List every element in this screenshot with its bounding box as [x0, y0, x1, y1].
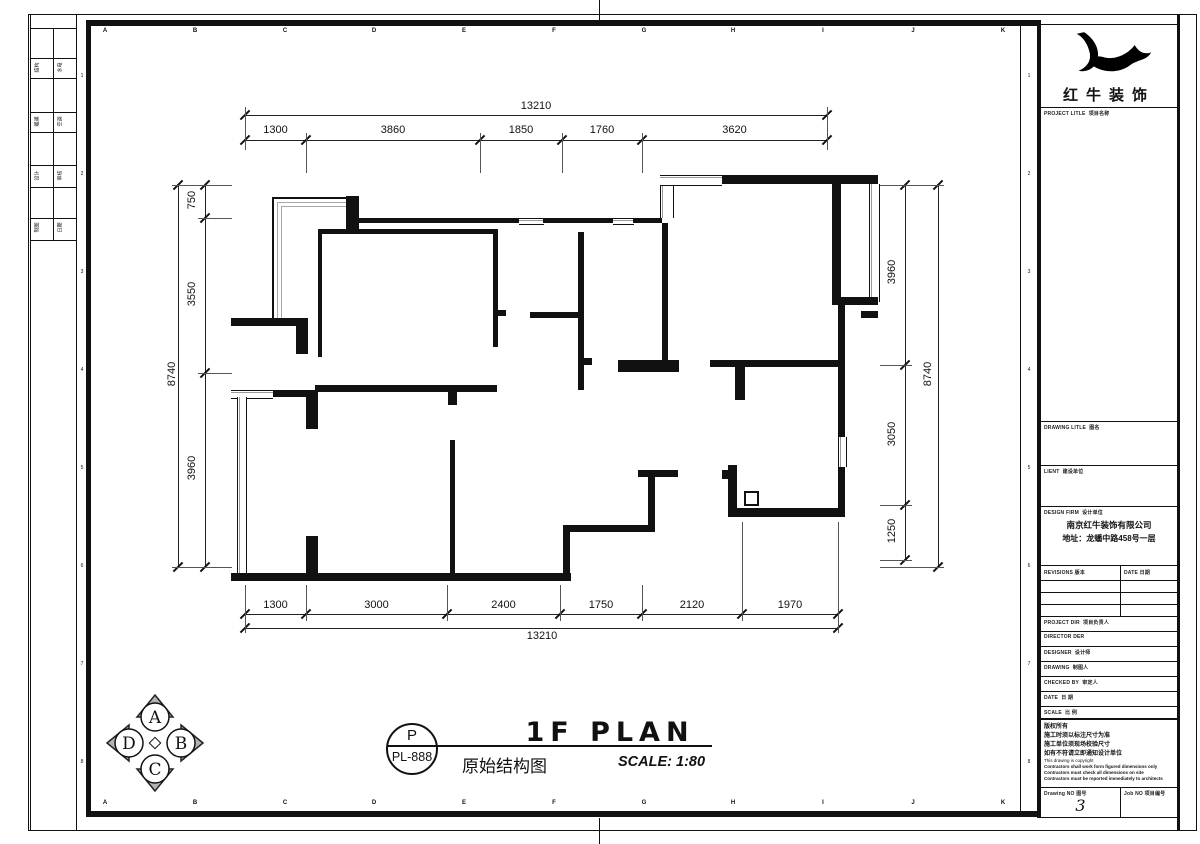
brand-name: 红牛装饰: [1041, 84, 1177, 105]
label-cn: 图名: [1089, 425, 1099, 431]
compass-s: C: [148, 760, 161, 780]
grid-number: 4: [1024, 367, 1034, 373]
grid-letter: A: [97, 800, 113, 806]
tb-line: [1120, 787, 1121, 817]
grid-letter: C: [277, 28, 293, 34]
staff-row: CHECKED BY 审定人: [1044, 679, 1098, 686]
wall: [710, 360, 845, 367]
tb-line: [1041, 787, 1177, 788]
wall: [832, 184, 841, 299]
tb-line: [1041, 565, 1177, 566]
wall: [578, 232, 584, 390]
fixture: [744, 491, 759, 506]
grid-letter: J: [905, 800, 921, 806]
wall: [315, 385, 497, 392]
window: [519, 218, 544, 225]
tb-line: [1041, 817, 1177, 818]
grid-letter: D: [366, 800, 382, 806]
label-cn: 制图人: [1073, 665, 1089, 671]
grid-number: 7: [77, 661, 87, 667]
label-en: DATE: [1044, 695, 1058, 701]
ext-line: [306, 133, 307, 173]
wall: [722, 470, 728, 479]
wall: [273, 390, 318, 397]
date-col-label: DATE 日期: [1124, 569, 1150, 576]
label-en: DESIGNER: [1044, 650, 1072, 656]
job-no-label: Job NO 项目编号: [1124, 790, 1165, 797]
grid-letter: E: [456, 28, 472, 34]
tb-line: [1041, 506, 1177, 507]
label-en: PROJECT DIR: [1044, 620, 1080, 626]
label-cn: 项目名称: [1089, 111, 1110, 117]
dim-line: [245, 614, 838, 615]
wall: [231, 318, 308, 326]
dim-line: [178, 185, 179, 567]
table-line: [53, 28, 54, 240]
label-cn: 设计单位: [1082, 510, 1103, 516]
fold-mark: [599, 818, 600, 844]
compass-w: D: [122, 734, 136, 754]
compass-n: A: [148, 708, 162, 728]
ext-line: [172, 185, 232, 186]
dim-label: 1300: [245, 599, 306, 611]
window: [869, 184, 880, 302]
firm-name: 南京红牛装饰有限公司: [1041, 519, 1177, 531]
wall: [638, 470, 678, 477]
frame-band: [86, 20, 1041, 26]
window: [237, 397, 247, 573]
signoff-cell: 设计: [34, 170, 41, 180]
signoff-cell: 暖通: [34, 116, 41, 126]
tb-line: [1041, 631, 1177, 632]
window: [613, 218, 634, 225]
firm-address: 地址：龙蟠中路458号一层: [1041, 533, 1177, 544]
tb-line: [1041, 691, 1177, 692]
label-en: PROJECT LITLE: [1044, 111, 1086, 117]
grid-letter: G: [636, 800, 652, 806]
wall: [272, 197, 274, 322]
wall: [231, 573, 571, 581]
tb-line: [1041, 107, 1177, 108]
ext-line: [880, 567, 944, 568]
dim-label: 2400: [447, 599, 560, 611]
staff-row: DESIGNER 设计师: [1044, 649, 1091, 656]
wall: [318, 229, 498, 234]
dim-label: 3620: [642, 124, 827, 136]
ext-line: [245, 585, 246, 633]
grid-letter: H: [725, 28, 741, 34]
grid-letter: G: [636, 28, 652, 34]
copyright-line: Contractors shall work form figured dime…: [1044, 764, 1157, 769]
grid-number: 4: [77, 367, 87, 373]
dim-label: 3860: [306, 124, 480, 136]
ext-line: [172, 567, 232, 568]
client-label: LIENT 建设单位: [1044, 468, 1083, 475]
ext-line: [480, 133, 481, 173]
wall: [563, 532, 570, 578]
plan-title-en: 1F PLAN: [500, 717, 720, 748]
window: [838, 437, 847, 467]
wall: [306, 536, 318, 573]
wall: [735, 367, 745, 400]
window: [660, 175, 722, 186]
grid-number: 7: [1024, 661, 1034, 667]
dim-label: 8740: [166, 344, 178, 404]
grid-letter: I: [815, 28, 831, 34]
grid-letter: B: [187, 800, 203, 806]
dim-label: 3960: [186, 438, 198, 498]
compass-icon: A B C D: [105, 693, 205, 793]
frame-line: [1020, 26, 1021, 812]
ext-line: [447, 585, 448, 621]
fold-mark: [599, 0, 600, 21]
dim-line: [938, 185, 939, 567]
grid-letter: I: [815, 800, 831, 806]
dim-label: 1300: [245, 124, 306, 136]
frame-line: [1177, 20, 1178, 818]
wall: [281, 206, 347, 207]
compass-e: B: [175, 734, 188, 754]
dim-label: 1970: [742, 599, 838, 611]
grid-number: 1: [1024, 73, 1034, 79]
copyright-line: 施工时须以标注尺寸为准: [1044, 730, 1110, 739]
signoff-cell: 审核: [57, 170, 64, 180]
label-cn: 建设单位: [1063, 469, 1084, 475]
ext-line: [880, 505, 912, 506]
label-en: DRAWING LITLE: [1044, 425, 1086, 431]
tb-line: [1041, 718, 1177, 720]
dim-label: 3050: [886, 404, 898, 464]
wall: [346, 196, 359, 232]
wall: [448, 392, 457, 405]
staff-row: DIRECTOR DER: [1044, 634, 1088, 640]
wall: [450, 440, 455, 573]
ext-line: [642, 133, 643, 173]
grid-number: 3: [1024, 269, 1034, 275]
label-en: DATE: [1124, 570, 1138, 576]
dim-label: 1850: [480, 124, 562, 136]
frame-line: [76, 14, 77, 830]
label-en: LIENT: [1044, 469, 1059, 475]
drawing-no-value: 3: [1041, 796, 1120, 815]
tb-line: [1120, 565, 1121, 616]
staff-row: DRAWING 制图人: [1044, 664, 1088, 671]
wall: [493, 229, 498, 347]
wall: [662, 223, 668, 360]
wall: [648, 477, 655, 527]
grid-number: 8: [77, 759, 87, 765]
dim-label: 1750: [560, 599, 642, 611]
tb-line: [1041, 604, 1177, 605]
wall: [633, 218, 662, 223]
staff-row: DATE 日 期: [1044, 694, 1073, 701]
label-en: REVISIONS: [1044, 570, 1073, 576]
grid-number: 5: [1024, 465, 1034, 471]
tb-line: [1041, 24, 1177, 25]
ext-line: [838, 522, 839, 633]
frame-line: [1196, 14, 1197, 830]
copyright-line: This drawing is copyright: [1044, 758, 1094, 763]
dim-label: 3550: [186, 264, 198, 324]
wall: [543, 218, 614, 223]
label-en: DESIGN FIRM: [1044, 510, 1079, 516]
tb-line: [1041, 661, 1177, 662]
wall: [832, 297, 878, 305]
dim-line: [245, 115, 827, 116]
ext-line: [742, 522, 743, 621]
signoff-cell: 空调: [57, 116, 64, 126]
wall: [281, 206, 282, 318]
drawing-title-label: DRAWING LITLE 图名: [1044, 424, 1100, 431]
dim-line: [245, 628, 838, 629]
wall: [306, 397, 318, 429]
table-line: [30, 240, 76, 241]
wall: [861, 311, 878, 318]
wall: [737, 508, 845, 517]
design-firm-label: DESIGN FIRM 设计单位: [1044, 509, 1103, 516]
wall: [272, 197, 349, 199]
grid-letter: J: [905, 28, 921, 34]
grid-number: 6: [1024, 563, 1034, 569]
ext-line: [562, 133, 563, 173]
grid-number: 6: [77, 563, 87, 569]
grid-letter: F: [546, 800, 562, 806]
label-cn: 日 期: [1061, 695, 1073, 701]
grid-letter: K: [995, 28, 1011, 34]
frame-line: [28, 830, 1197, 831]
tb-line: [1041, 421, 1177, 422]
dim-label: 13210: [512, 630, 572, 642]
label-cn: 日期: [1140, 570, 1150, 576]
tb-line: [1041, 676, 1177, 677]
signoff-cell: 结构: [34, 62, 41, 72]
label-en: SCALE: [1044, 710, 1062, 716]
tb-line: [1041, 706, 1177, 707]
grid-letter: B: [187, 28, 203, 34]
ext-line: [198, 373, 232, 374]
plan-title-cn: 原始结构图: [462, 752, 572, 777]
dim-label: 8740: [922, 344, 934, 404]
stamp-number: PL-888: [386, 750, 438, 764]
ext-line: [642, 585, 643, 621]
tb-line: [1041, 616, 1177, 617]
label-cn: 项目负责人: [1083, 620, 1109, 626]
tb-line: [1041, 580, 1177, 581]
signoff-cell: 制图: [34, 222, 41, 232]
grid-number: 3: [77, 269, 87, 275]
label-cn: 比 例: [1065, 710, 1077, 716]
dim-label: 1250: [886, 501, 898, 561]
dim-label: 2120: [642, 599, 742, 611]
wall: [618, 360, 679, 372]
label-cn: 项目编号: [1145, 791, 1166, 797]
tb-line: [1041, 465, 1177, 466]
frame-band: [86, 811, 1041, 817]
grid-letter: E: [456, 800, 472, 806]
frame-band: [1037, 20, 1041, 818]
frame-band: [86, 20, 91, 817]
label-cn: 设计师: [1075, 650, 1091, 656]
tb-line: [1041, 592, 1177, 593]
wall: [296, 326, 308, 354]
grid-letter: H: [725, 800, 741, 806]
grid-number: 1: [77, 73, 87, 79]
wall: [277, 202, 278, 320]
signoff-cell: 日期: [57, 222, 64, 232]
dim-line: [245, 140, 827, 141]
label-cn: 审定人: [1082, 680, 1098, 686]
ext-line: [880, 560, 912, 561]
label-cn: 版本: [1075, 570, 1085, 576]
grid-letter: C: [277, 800, 293, 806]
grid-number: 2: [1024, 171, 1034, 177]
dim-label: 3960: [886, 242, 898, 302]
stamp-letter: P: [386, 727, 438, 744]
copyright-line: Contractors must check all dimensions on…: [1044, 770, 1144, 775]
plan-scale: SCALE: 1:80: [618, 754, 718, 770]
label-en: CHECKED BY: [1044, 680, 1079, 686]
project-title-label: PROJECT LITLE 项目名称: [1044, 110, 1110, 117]
grid-number: 8: [1024, 759, 1034, 765]
wall: [318, 234, 322, 357]
wall: [563, 525, 655, 532]
wall: [277, 202, 347, 203]
grid-number: 5: [77, 465, 87, 471]
frame-line: [30, 14, 31, 830]
drawing-sheet: 结构 水电 暖通 空调 设计 审核 制图 日期 A B C D E F G H …: [0, 0, 1200, 844]
dim-line: [205, 185, 206, 567]
signoff-cell: 水电: [57, 62, 64, 72]
dim-label: 750: [186, 170, 198, 230]
ext-line: [198, 218, 232, 219]
tb-line: [1041, 646, 1177, 647]
revisions-label: REVISIONS 版本: [1044, 569, 1085, 576]
staff-row: PROJECT DIR 项目负责人: [1044, 619, 1109, 626]
grid-letter: K: [995, 800, 1011, 806]
dim-label: 3000: [306, 599, 447, 611]
ext-line: [306, 585, 307, 621]
copyright-line: Contractors must be reported immediately…: [1044, 776, 1163, 781]
ext-line: [880, 365, 912, 366]
wall: [728, 465, 737, 517]
ext-line: [827, 107, 828, 150]
frame-line: [28, 14, 1197, 15]
label-en: Job NO: [1124, 791, 1143, 797]
wall: [838, 305, 845, 437]
dim-label: 1760: [562, 124, 642, 136]
grid-number: 2: [77, 171, 87, 177]
ext-line: [245, 107, 246, 150]
copyright-line: 版权所有: [1044, 721, 1068, 730]
ext-line: [880, 185, 944, 186]
label-en: DRAWING: [1044, 665, 1070, 671]
brand-logo: [1062, 30, 1154, 82]
grid-letter: D: [366, 28, 382, 34]
dim-label: 13210: [506, 100, 566, 112]
copyright-line: 施工单位须现场校验尺寸: [1044, 739, 1110, 748]
wall: [356, 218, 521, 223]
wall: [584, 358, 592, 365]
grid-letter: F: [546, 28, 562, 34]
window: [660, 183, 674, 218]
wall: [722, 175, 878, 184]
frame-line: [28, 14, 29, 830]
grid-letter: A: [97, 28, 113, 34]
label-en: DIRECTOR DER: [1044, 634, 1084, 640]
wall: [498, 310, 506, 316]
copyright-line: 如有不符请立即通知设计单位: [1044, 748, 1122, 757]
staff-row: SCALE 比 例: [1044, 709, 1077, 716]
ext-line: [560, 585, 561, 621]
wall: [530, 312, 578, 318]
